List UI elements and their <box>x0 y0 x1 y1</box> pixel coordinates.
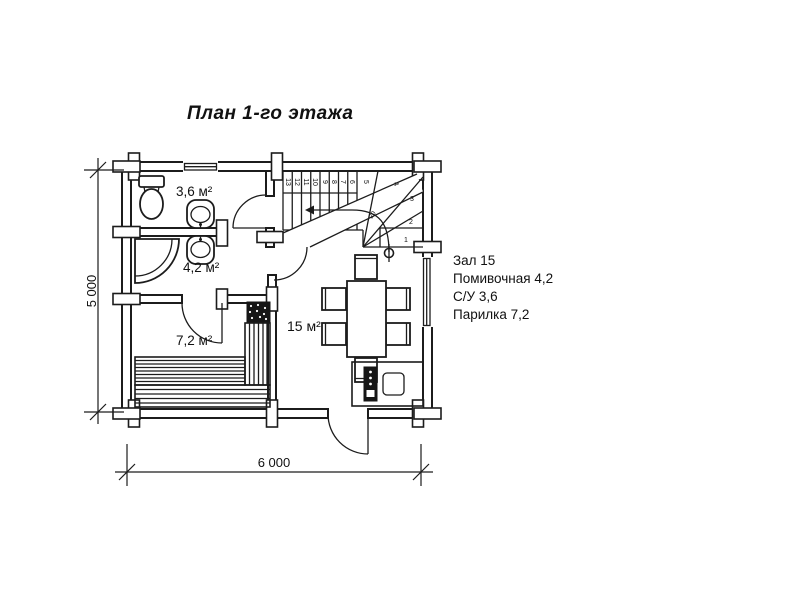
sink-lower-drain <box>199 238 202 241</box>
room-label-sauna: 7,2 м² <box>176 333 213 348</box>
room-label-hall: 15 м² <box>287 318 321 334</box>
step-number: 3 <box>410 196 414 203</box>
legend-line-wc: С/У 3,6 <box>453 288 553 306</box>
room-label-wc: 3,6 м² <box>176 184 213 199</box>
step-number: 13 <box>284 178 291 186</box>
room-legend: Зал 15 Помивочная 4,2 С/У 3,6 Парилка 7,… <box>453 252 553 324</box>
step-number: 5 <box>362 180 369 184</box>
legend-line-sauna: Парилка 7,2 <box>453 306 553 324</box>
wall-bottom-left <box>122 409 328 418</box>
sauna-bench-side-slats <box>250 323 268 385</box>
step-number: 9 <box>321 180 328 184</box>
floor-plan-page: План 1-го этажа <box>0 0 800 600</box>
toilet-bowl <box>140 189 163 219</box>
hall-furniture <box>322 255 423 406</box>
dining-table <box>347 281 386 357</box>
dim-width-label: 6 000 <box>258 455 291 470</box>
log-crossing <box>272 153 283 180</box>
step-number: 7 <box>339 180 346 184</box>
dim-height-label: 5 000 <box>84 275 99 308</box>
log-crossing <box>414 408 441 419</box>
step-number: 11 <box>302 178 309 185</box>
sauna-bench-lower <box>135 385 270 407</box>
wall-wc-washing <box>131 228 222 236</box>
log-crossing <box>414 161 441 172</box>
staircase: 20 13 12 11 10 9 8 7 6 5 4 3 2 1 <box>283 171 423 262</box>
step-number: 2 <box>409 219 413 226</box>
step-number: 10 <box>311 178 318 186</box>
log-crossing <box>257 232 283 243</box>
corner-shower-tray <box>135 239 179 283</box>
room-label-washing: 4,2 м² <box>183 260 220 275</box>
log-crossing <box>113 227 140 238</box>
log-crossing <box>267 400 278 427</box>
door-arc-wc <box>233 195 266 228</box>
legend-line-hall: Зал 15 <box>453 252 553 270</box>
toilet-tank <box>139 176 164 187</box>
step-number: 1 <box>404 237 408 244</box>
sauna-bench-lower-slats <box>135 390 270 404</box>
log-crossing <box>113 294 140 305</box>
appliance-knob <box>369 371 372 374</box>
stair-walk-arrow <box>305 206 314 215</box>
floor-plan-drawing: 20 13 12 11 10 9 8 7 6 5 4 3 2 1 <box>0 0 800 600</box>
legend-line-washing: Помивочная 4,2 <box>453 270 553 288</box>
step-number: 6 <box>348 180 355 184</box>
kitchen-sink <box>383 373 404 395</box>
log-crossing <box>217 220 228 246</box>
appliance-knob <box>369 377 372 380</box>
sauna-bench-side <box>245 323 270 385</box>
door-arc-hall <box>274 247 307 280</box>
step-number: 12 <box>293 178 300 186</box>
wall-left <box>122 162 131 418</box>
sink-upper-drain <box>199 223 202 226</box>
door-arc-entrance <box>328 414 368 454</box>
sauna-bench-upper-slats <box>135 361 245 382</box>
sauna-fixtures <box>135 302 270 407</box>
appliance-knob <box>369 383 372 386</box>
appliance-panel <box>367 390 375 397</box>
step-number: 8 <box>330 180 337 184</box>
log-crossing <box>113 408 140 419</box>
